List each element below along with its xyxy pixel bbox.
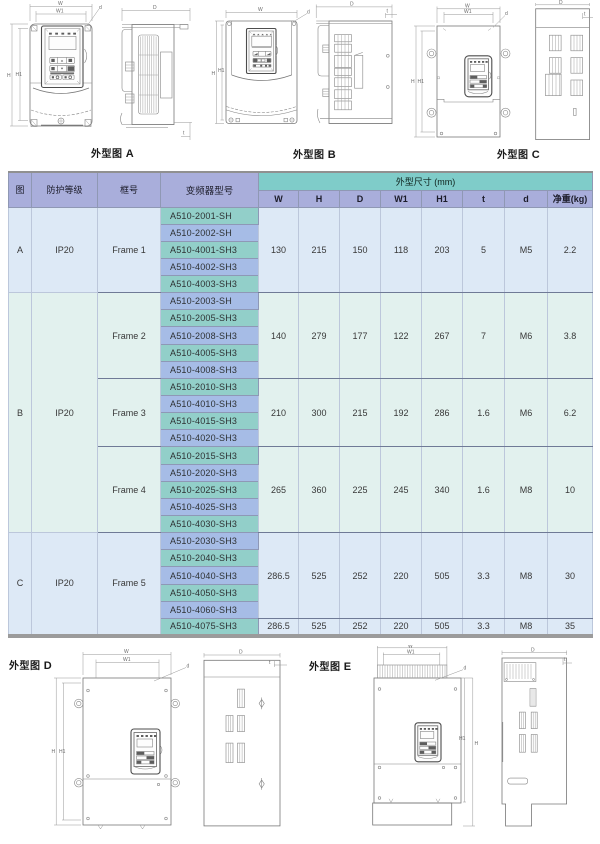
- svg-text:D: D: [531, 648, 535, 654]
- svg-text:W: W: [258, 7, 263, 13]
- svg-text:W1: W1: [56, 9, 64, 15]
- svg-text:t: t: [183, 131, 185, 137]
- svg-text:外型图 C: 外型图 C: [496, 148, 540, 161]
- svg-text:d: d: [464, 666, 467, 672]
- svg-text:D: D: [350, 2, 354, 8]
- svg-text:W: W: [58, 1, 63, 7]
- svg-text:W1: W1: [407, 649, 415, 655]
- svg-text:W1: W1: [123, 657, 131, 663]
- svg-text:H1: H1: [418, 79, 425, 85]
- svg-text:d: d: [99, 5, 102, 11]
- svg-text:D: D: [239, 650, 243, 656]
- svg-text:外型图 E: 外型图 E: [308, 660, 352, 673]
- svg-text:H: H: [411, 79, 415, 85]
- svg-text:外型图 B: 外型图 B: [292, 148, 336, 161]
- svg-text:d: d: [505, 11, 508, 17]
- svg-text:t: t: [269, 660, 271, 666]
- svg-text:H: H: [52, 749, 56, 755]
- svg-text:H1: H1: [459, 736, 466, 742]
- svg-text:d: d: [187, 664, 190, 670]
- svg-text:外型图 A: 外型图 A: [90, 147, 134, 160]
- svg-text:H: H: [212, 71, 216, 77]
- svg-text:t: t: [387, 9, 389, 15]
- svg-text:H1: H1: [59, 749, 66, 755]
- svg-text:W: W: [124, 649, 129, 655]
- svg-text:d: d: [307, 10, 310, 16]
- svg-text:H1: H1: [16, 72, 23, 78]
- svg-text:t: t: [584, 12, 586, 18]
- svg-text:D: D: [559, 0, 563, 6]
- svg-text:D: D: [153, 5, 157, 11]
- svg-text:H1: H1: [218, 68, 225, 74]
- svg-text:H: H: [7, 73, 11, 79]
- svg-text:W1: W1: [464, 9, 472, 15]
- svg-text:外型图 D: 外型图 D: [8, 659, 52, 672]
- svg-text:H: H: [475, 741, 479, 747]
